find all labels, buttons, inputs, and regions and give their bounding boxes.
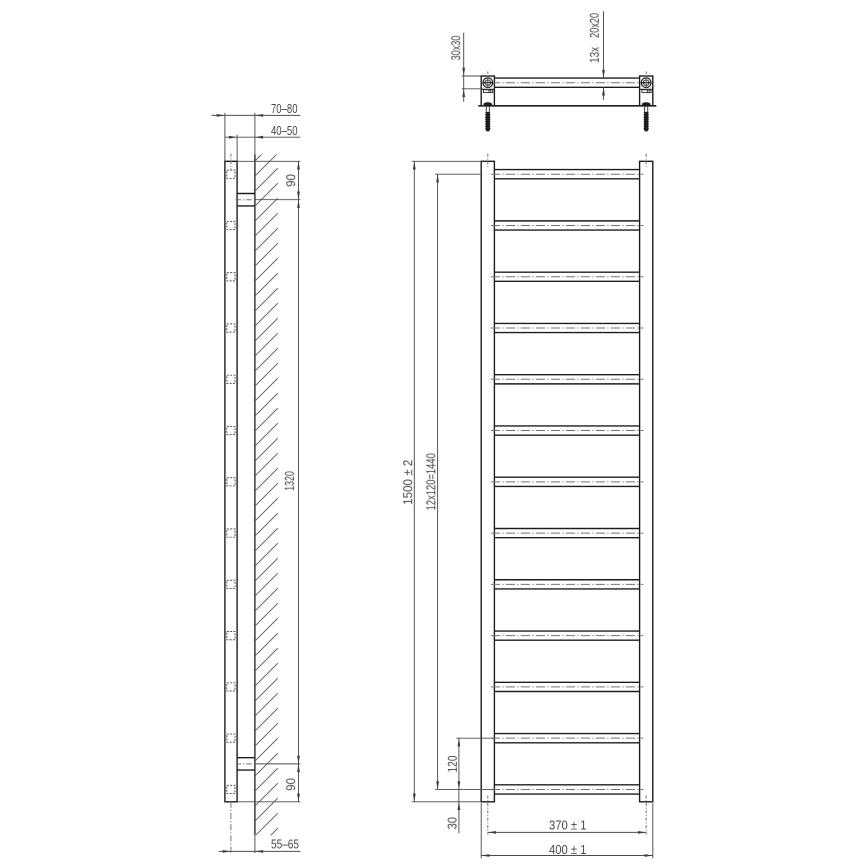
svg-text:30: 30 [445,817,460,829]
svg-text:1500 ± 2: 1500 ± 2 [400,460,415,505]
svg-text:13x: 13x [587,47,602,63]
svg-text:370 ± 1: 370 ± 1 [549,818,587,833]
svg-text:90: 90 [283,778,298,791]
svg-text:70–80: 70–80 [271,101,298,116]
svg-text:40–50: 40–50 [271,123,298,138]
svg-text:20x20: 20x20 [587,13,602,38]
svg-text:400 ± 1: 400 ± 1 [549,842,587,857]
svg-text:120: 120 [445,756,460,773]
svg-text:30x30: 30x30 [448,36,463,61]
svg-text:1320: 1320 [282,471,297,491]
svg-text:12x120=1440: 12x120=1440 [423,453,438,510]
svg-text:55–65: 55–65 [271,837,299,852]
svg-text:90: 90 [283,174,298,187]
